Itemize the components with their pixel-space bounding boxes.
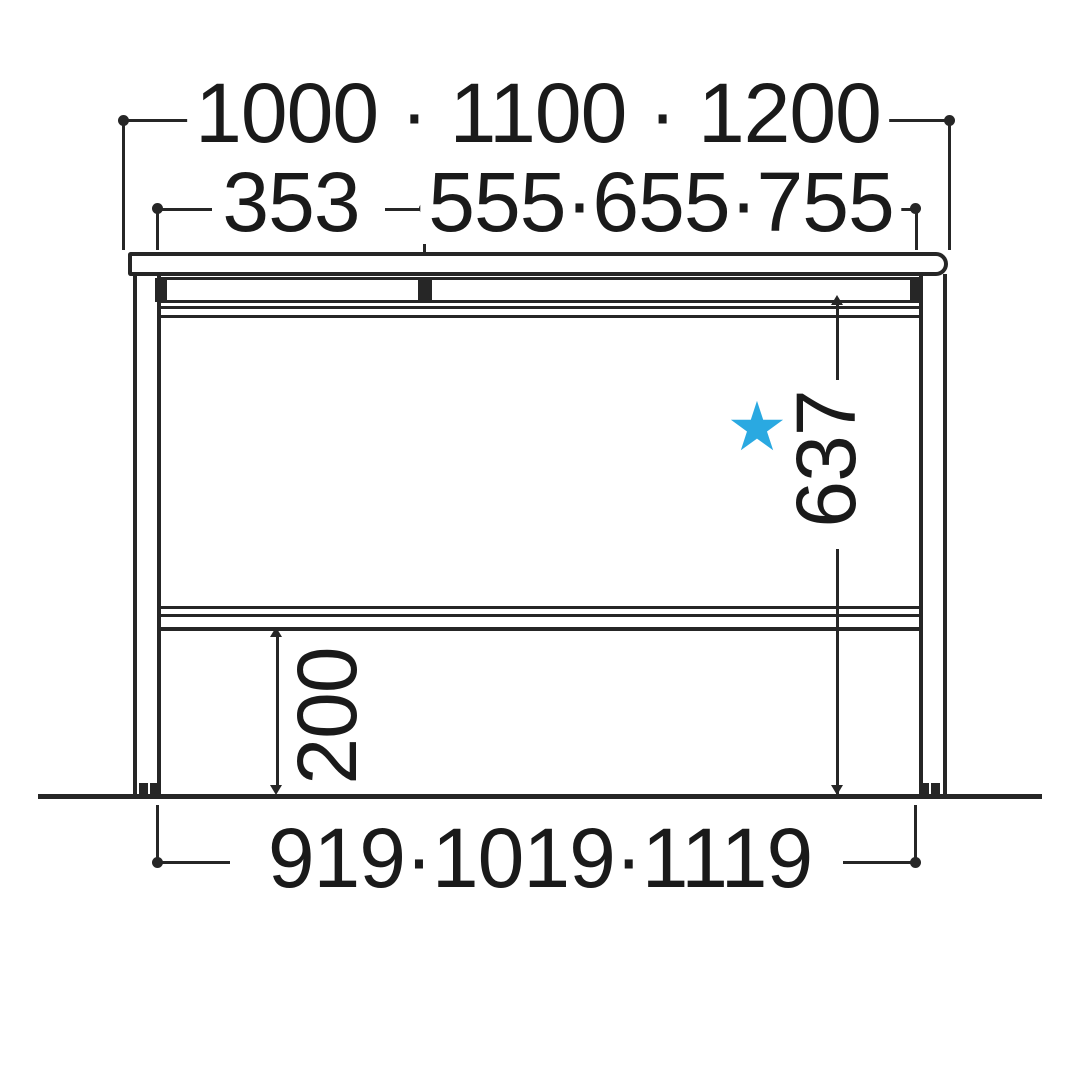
height-dim-200-arrow-bottom: [270, 785, 282, 795]
apron-cap-left: [155, 278, 167, 302]
height-dim-637-arrow-bottom: [831, 785, 843, 795]
bottom-dim-line-right: [843, 861, 916, 864]
leveling-glide: [139, 783, 148, 794]
dim-label-bottom-clearance: 200: [285, 643, 369, 788]
top-dim-line-right: [880, 119, 951, 122]
bottom-dim-extension-left: [156, 805, 159, 864]
mid-dim-end-dot-right: [910, 203, 921, 214]
floor-line: [38, 794, 1042, 799]
mid-dim-line-left: [157, 208, 212, 211]
star-icon: ★: [727, 393, 788, 461]
apron-rail: [159, 277, 919, 303]
leveling-glide: [150, 783, 159, 794]
top-dim-extension-left: [122, 118, 125, 250]
dim-label-right-section: 555·655·755: [420, 160, 901, 244]
top-dim-end-dot-left: [118, 115, 129, 126]
apron-divider: [418, 278, 432, 302]
right-leg: [919, 274, 947, 797]
dim-label-left-section: 353: [214, 160, 367, 244]
dim-label-overall-width: 1000 · 1100 · 1200: [187, 71, 889, 155]
leveling-glide: [931, 783, 940, 794]
height-dim-637-arrow-top: [831, 295, 843, 305]
top-dim-extension-right: [948, 118, 951, 250]
desk-dimension-diagram: 1000 · 1100 · 1200 353 555·655·755 637 ★…: [0, 0, 1080, 1080]
bottom-dim-extension-right: [914, 805, 917, 864]
bottom-dim-end-dot-right: [910, 857, 921, 868]
leveling-glide: [920, 783, 929, 794]
left-leg: [133, 274, 161, 797]
bottom-dim-line-left: [157, 861, 230, 864]
height-dim-200-line: [276, 636, 279, 788]
top-dim-line-left: [124, 119, 194, 122]
height-dim-637-line-upper: [836, 304, 839, 380]
dim-label-leg-span: 919·1019·1119: [260, 816, 820, 900]
apron-cap-right: [910, 278, 919, 302]
tabletop: [128, 252, 948, 276]
top-dim-end-dot-right: [944, 115, 955, 126]
mid-dim-end-dot-left: [152, 203, 163, 214]
dim-label-inner-height: 637: [784, 386, 868, 531]
modesty-panel-bottom-band: [161, 606, 919, 617]
height-dim-637-line-lower: [836, 549, 839, 795]
under-rail: [159, 306, 919, 318]
height-dim-200-arrow-top: [270, 627, 282, 637]
bottom-dim-end-dot-left: [152, 857, 163, 868]
